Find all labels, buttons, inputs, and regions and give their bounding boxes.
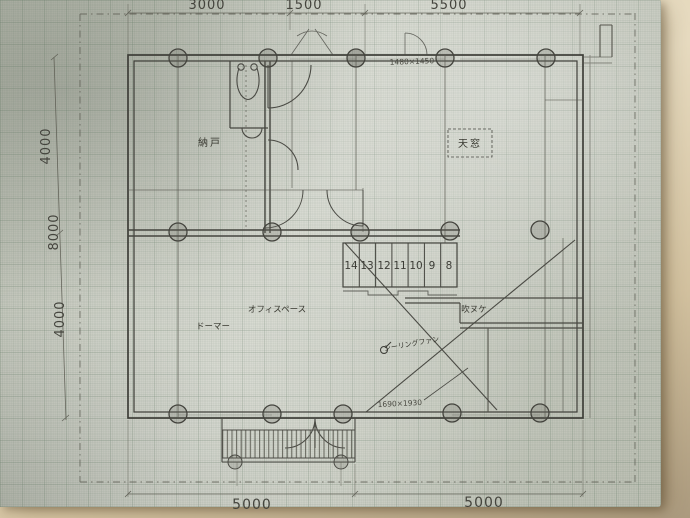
room-label-storage: 納戸 [198, 136, 222, 149]
room-label-skylight: 天窓 [458, 137, 482, 150]
stair-number: 11 [393, 260, 406, 272]
stair-number: 13 [360, 260, 373, 272]
annotation-ceiling-fan: シーリングファン [383, 334, 440, 353]
door-arcs [265, 29, 427, 448]
annotation-window-top: 1480×1450 [390, 56, 435, 67]
dim-left-1: 4000 [39, 127, 54, 164]
room-label-dormer: ドーマー [196, 322, 230, 332]
dim-bottom-2: 5000 [464, 495, 504, 511]
stair-number: 14 [344, 260, 358, 272]
plan-linework: 3000 1500 5500 4000 8000 4000 5000 5000 … [0, 0, 690, 518]
basin-arc [242, 128, 262, 138]
dimension-lines [51, 4, 586, 497]
dim-top-2: 1500 [285, 0, 322, 13]
dim-top-1: 3000 [188, 0, 225, 13]
toilet-fixture [237, 64, 262, 138]
stair-numbers: 14 13 12 11 10 9 8 [344, 260, 452, 272]
stair-number: 10 [409, 260, 422, 272]
stair-number: 9 [429, 260, 436, 272]
dim-left-2: 8000 [47, 213, 62, 250]
balcony-railing [222, 418, 355, 469]
annotation-window-bottom: 1690×1930 [377, 398, 422, 409]
dim-left-3: 4000 [53, 300, 68, 337]
stair-number: 12 [377, 260, 390, 272]
dim-bottom-1: 5000 [232, 497, 272, 513]
stair-number: 8 [446, 260, 453, 272]
room-label-office-space: オフィスペース [248, 305, 306, 315]
dim-top-3: 5500 [430, 0, 467, 13]
room-label-void: 吹ヌケ [461, 304, 487, 315]
